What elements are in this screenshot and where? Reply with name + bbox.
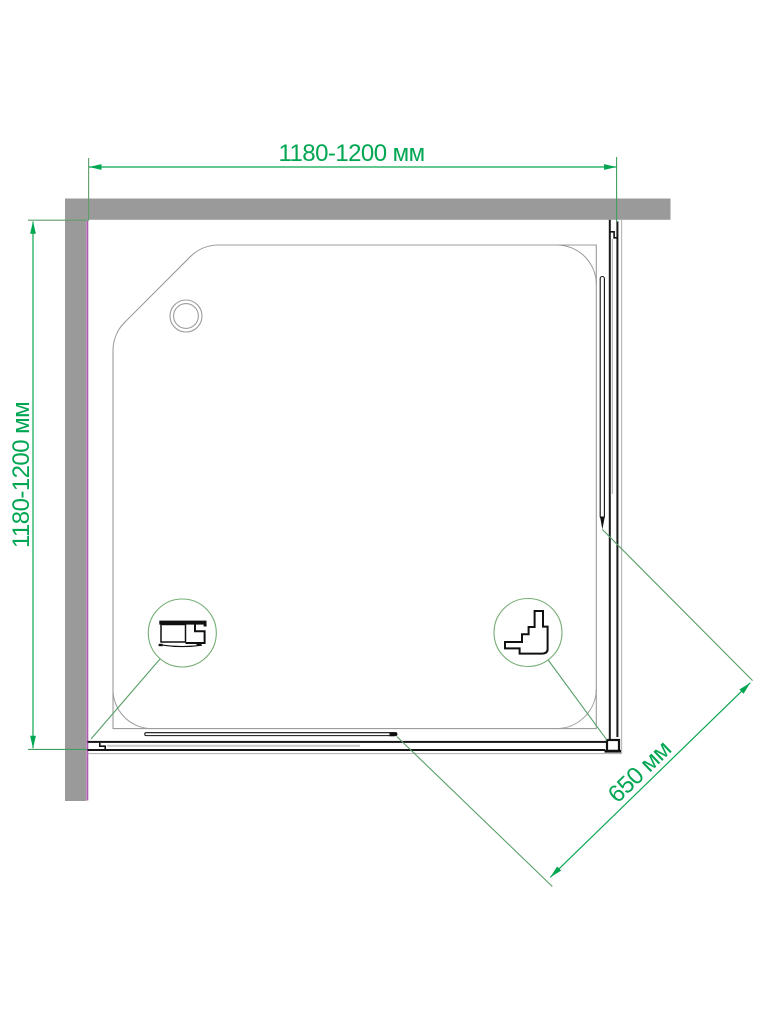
svg-text:1180-1200 мм: 1180-1200 мм — [8, 402, 35, 548]
svg-text:1180-1200 мм: 1180-1200 мм — [278, 140, 424, 167]
